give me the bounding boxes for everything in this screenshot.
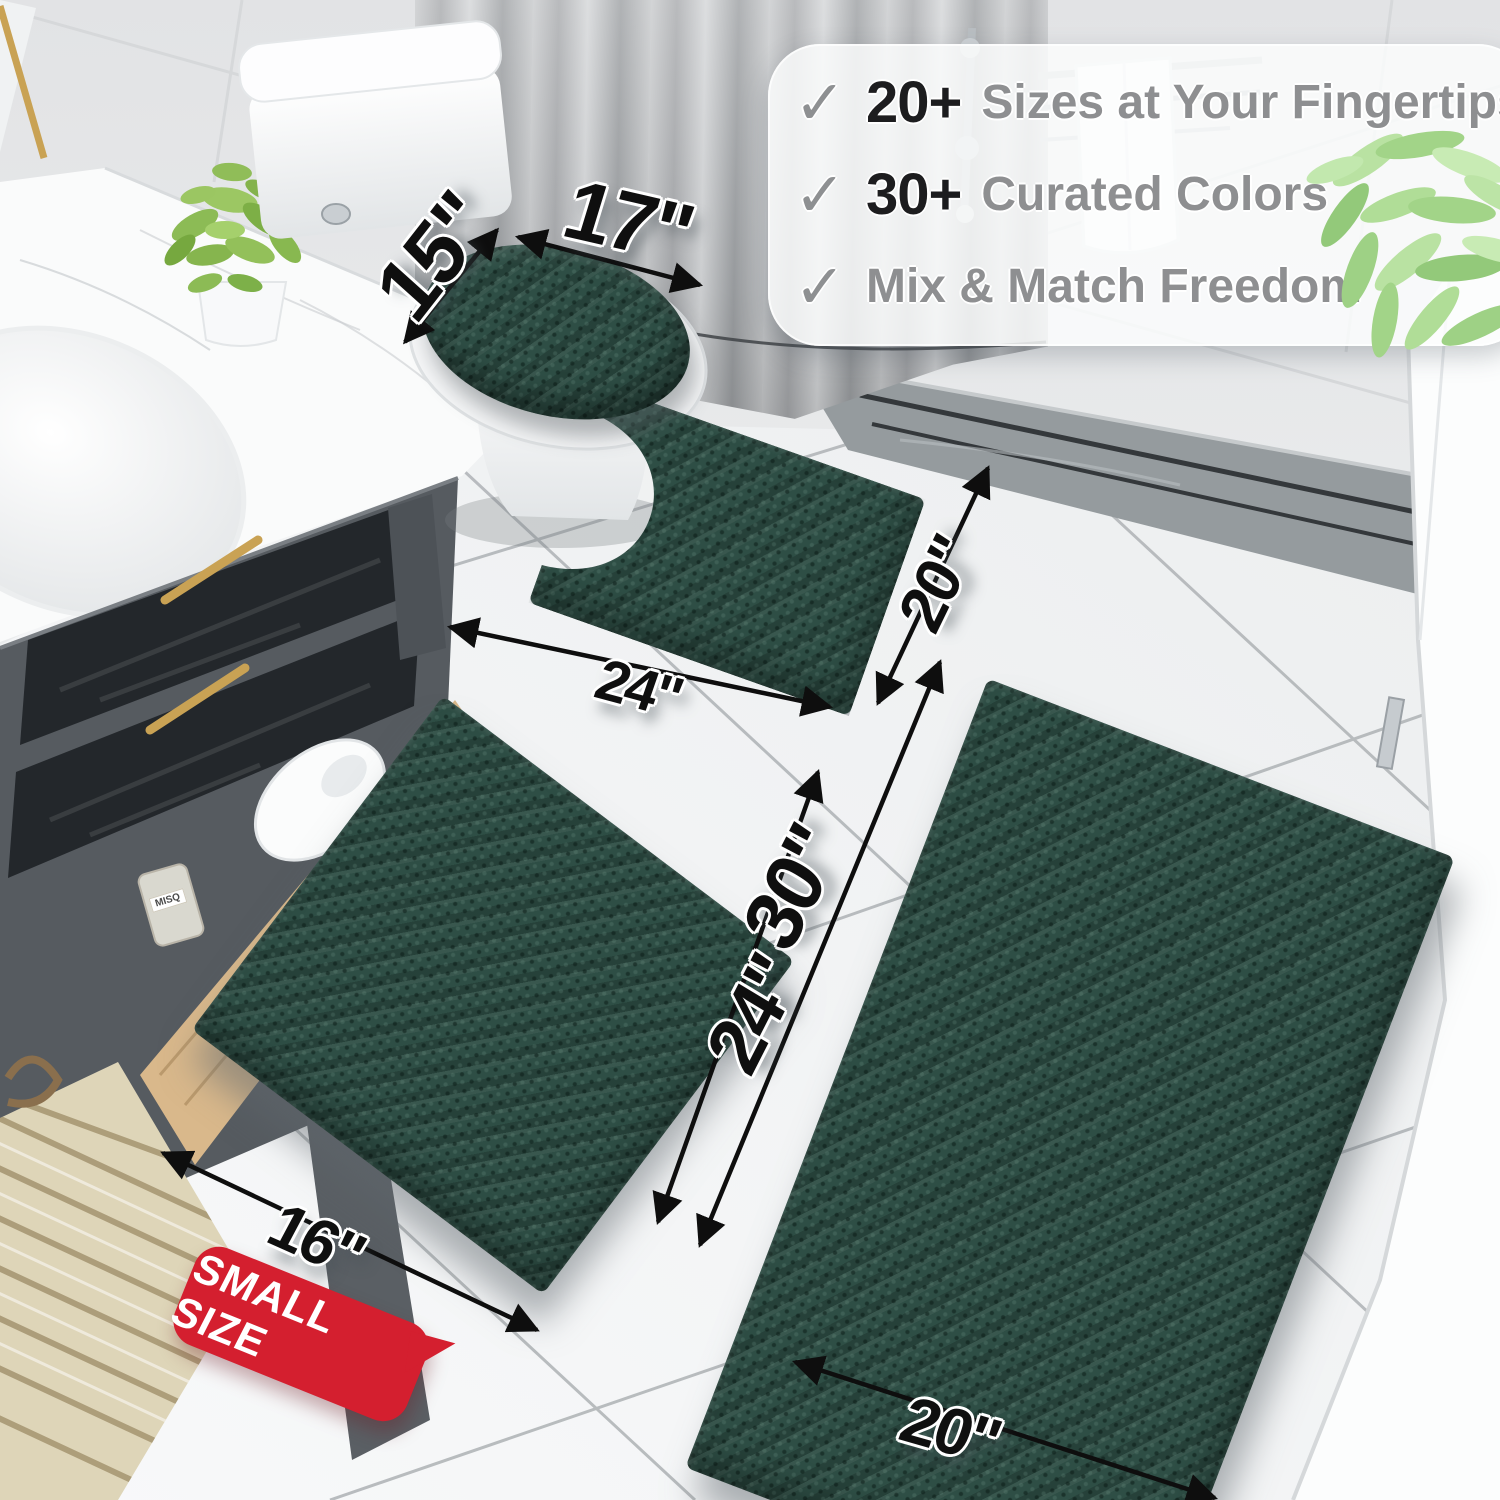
feature-label: Curated Colors [981, 167, 1328, 222]
check-icon: ✓ [794, 250, 846, 323]
feature-label: Mix & Match Freedom [866, 259, 1362, 314]
feature-row: ✓ 20+ Sizes at Your Fingertips [768, 56, 1500, 148]
feature-label: Sizes at Your Fingertips [981, 75, 1500, 130]
check-icon: ✓ [794, 158, 846, 231]
feature-stat: 30+ [866, 161, 961, 228]
arrow-large-rug-width [795, 1362, 1215, 1498]
feature-callout-box: ✓ 20+ Sizes at Your Fingertips ✓ 30+ Cur… [768, 44, 1500, 346]
bathroom-rug-product-image: MISQ [0, 0, 1500, 1500]
feature-stat: 20+ [866, 69, 961, 136]
feature-row: ✓ Mix & Match Freedom [768, 240, 1500, 332]
check-icon: ✓ [794, 66, 846, 139]
feature-row: ✓ 30+ Curated Colors [768, 148, 1500, 240]
